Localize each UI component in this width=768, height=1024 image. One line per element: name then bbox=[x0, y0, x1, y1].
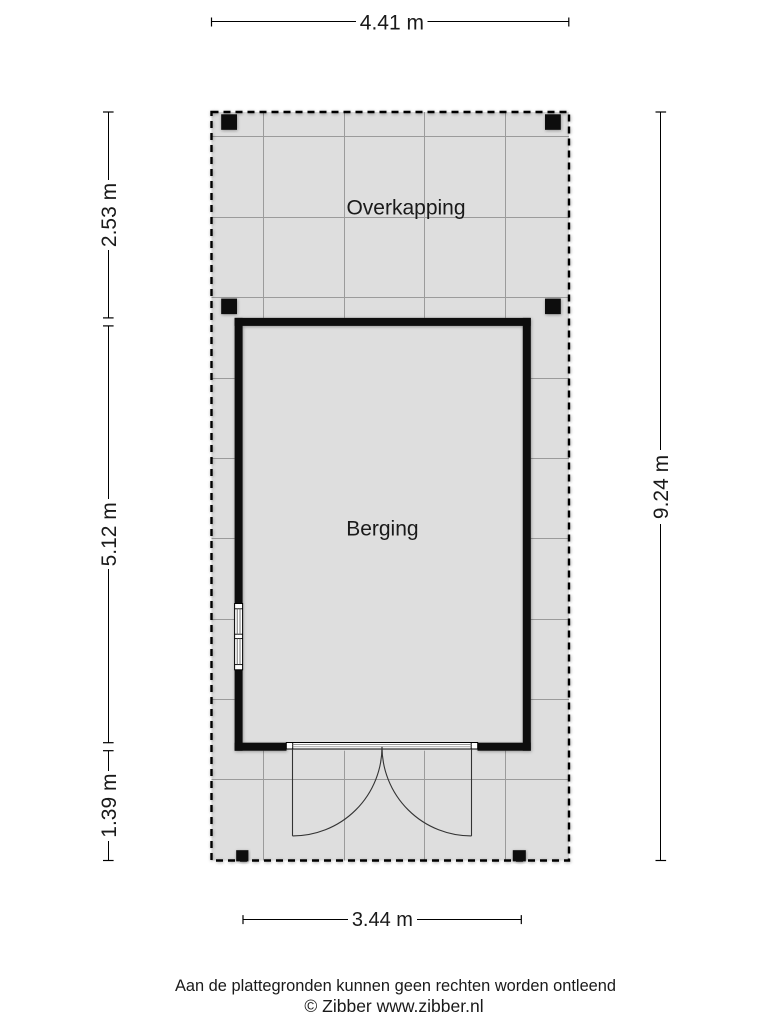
svg-text:Aan de plattegronden kunnen ge: Aan de plattegronden kunnen geen rechten… bbox=[175, 977, 616, 995]
svg-text:Overkapping: Overkapping bbox=[346, 196, 465, 219]
svg-text:1.39 m: 1.39 m bbox=[98, 773, 121, 837]
svg-text:© Zibber www.zibber.nl: © Zibber www.zibber.nl bbox=[304, 996, 483, 1016]
svg-text:4.41 m: 4.41 m bbox=[360, 11, 424, 34]
svg-text:Berging: Berging bbox=[346, 518, 418, 541]
svg-text:5.12 m: 5.12 m bbox=[98, 502, 121, 566]
svg-text:3.44 m: 3.44 m bbox=[352, 909, 413, 931]
svg-text:2.53 m: 2.53 m bbox=[98, 183, 121, 247]
svg-text:9.24 m: 9.24 m bbox=[650, 455, 673, 519]
